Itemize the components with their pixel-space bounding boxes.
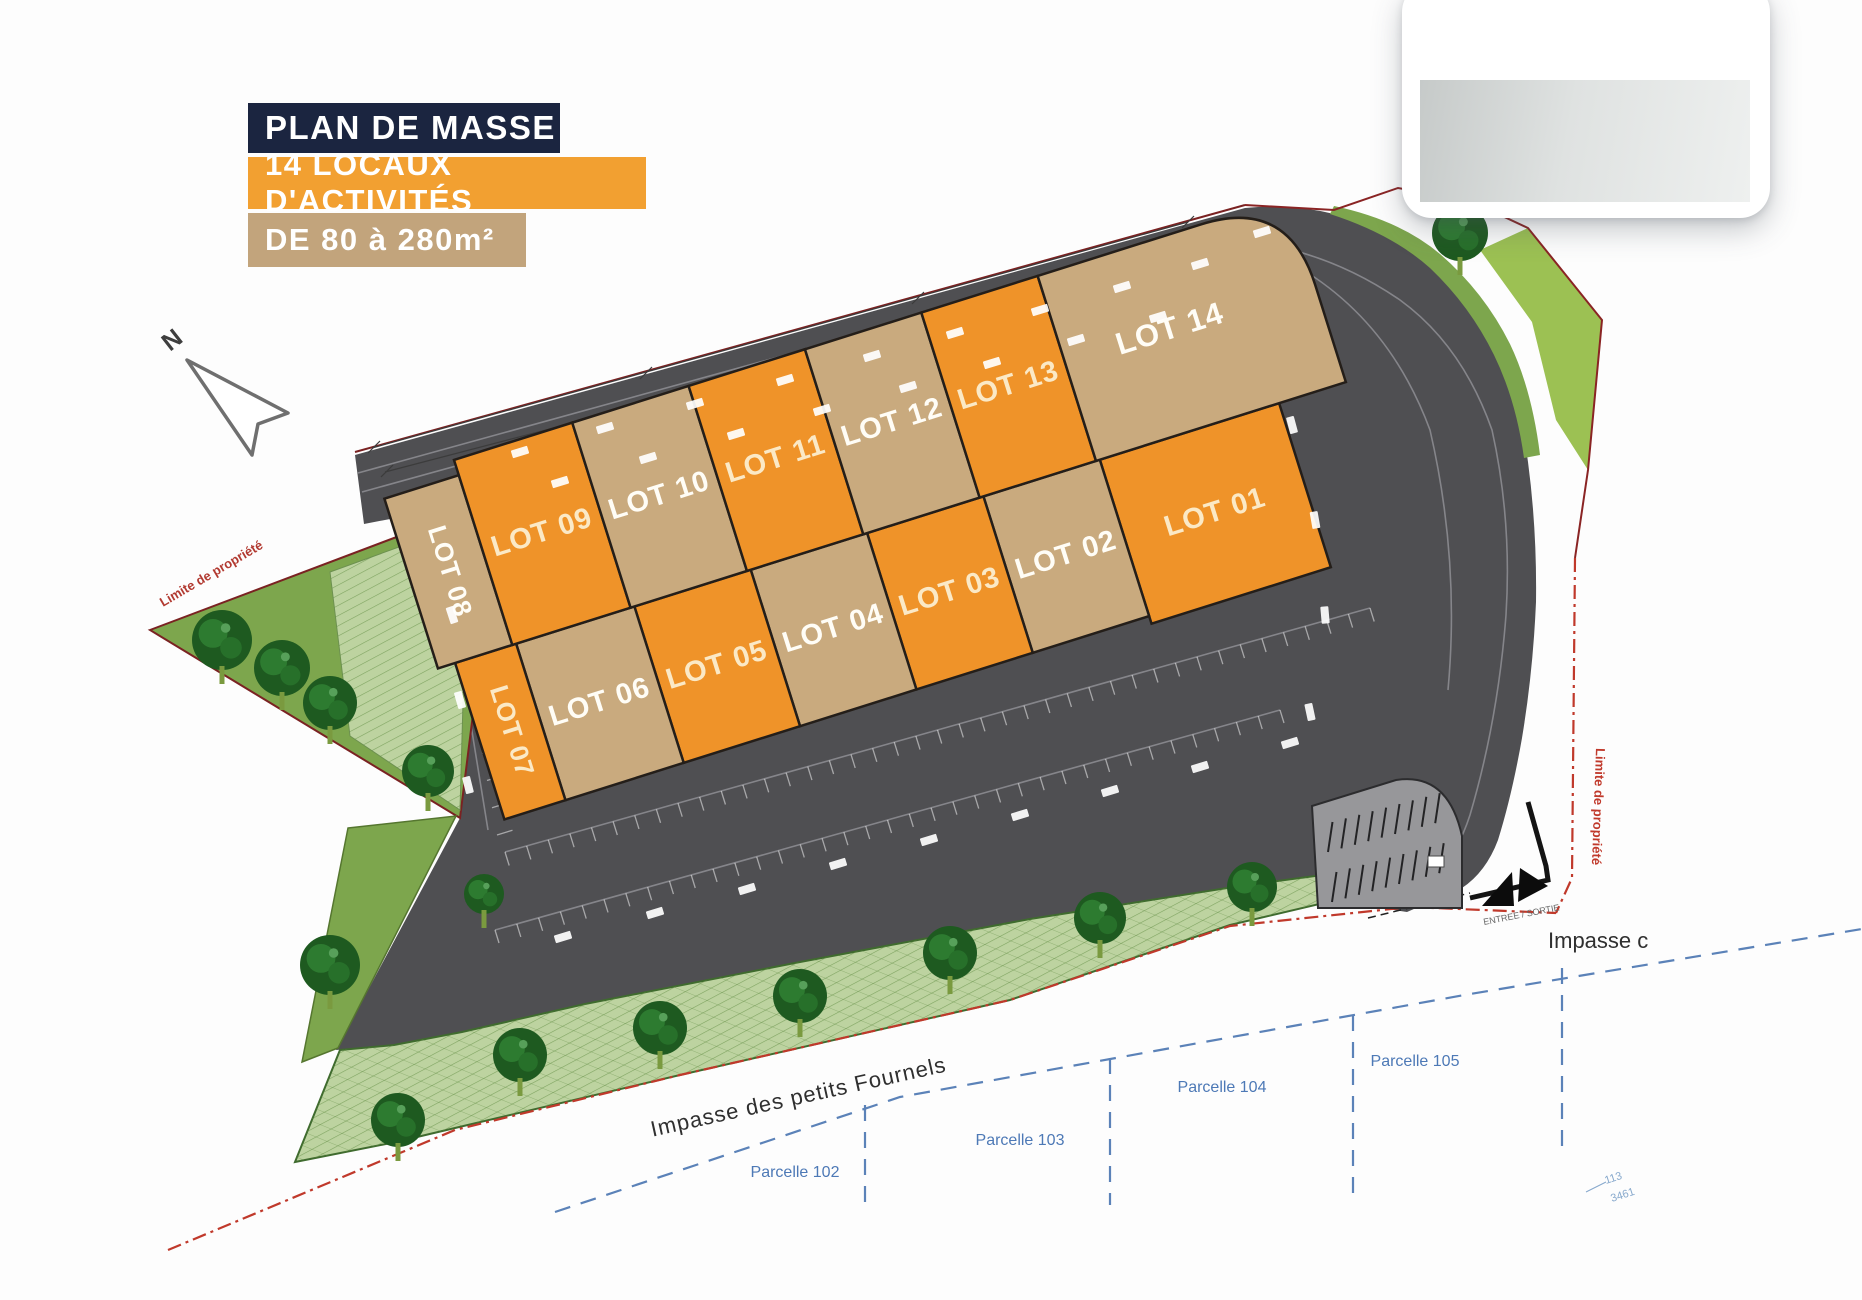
north-arrow: N [156,324,288,455]
parcel-label-104: Parcelle 104 [1178,1079,1267,1096]
plan-subtitle: 14 LOCAUX D'ACTIVITÉS [265,147,646,219]
plan-title: PLAN DE MASSE [265,109,556,147]
parcel-label-102: Parcelle 102 [751,1164,840,1181]
tree-icon [371,1093,425,1161]
plan-surface-range: DE 80 à 280m² [265,222,495,258]
site-plan-page: LOT 01LOT 02LOT 03LOT 04LOT 05LOT 06LOT … [0,0,1862,1300]
plan-surface-banner: DE 80 à 280m² [248,213,526,267]
cadastre-number-2: 3461 [1609,1186,1636,1205]
parcel-label-105: Parcelle 105 [1371,1053,1460,1070]
north-label: N [156,324,187,357]
logo-card [1402,0,1770,218]
logo-card-band [1420,80,1750,202]
parcel-label-103: Parcelle 103 [976,1132,1065,1149]
cadastre-number-1: 113 [1603,1170,1623,1187]
cadastre-numbers: 113 3461 [1586,1170,1636,1205]
parking-sign [1428,856,1444,867]
entrance-label: ENTREE / SORTIE [1482,902,1560,927]
plan-subtitle-banner: 14 LOCAUX D'ACTIVITÉS [248,157,646,209]
limite-propriete-right: Limite de propriété [1589,748,1608,865]
plan-title-banner: PLAN DE MASSE [248,103,560,153]
street-label-right: Impasse c [1548,928,1648,953]
